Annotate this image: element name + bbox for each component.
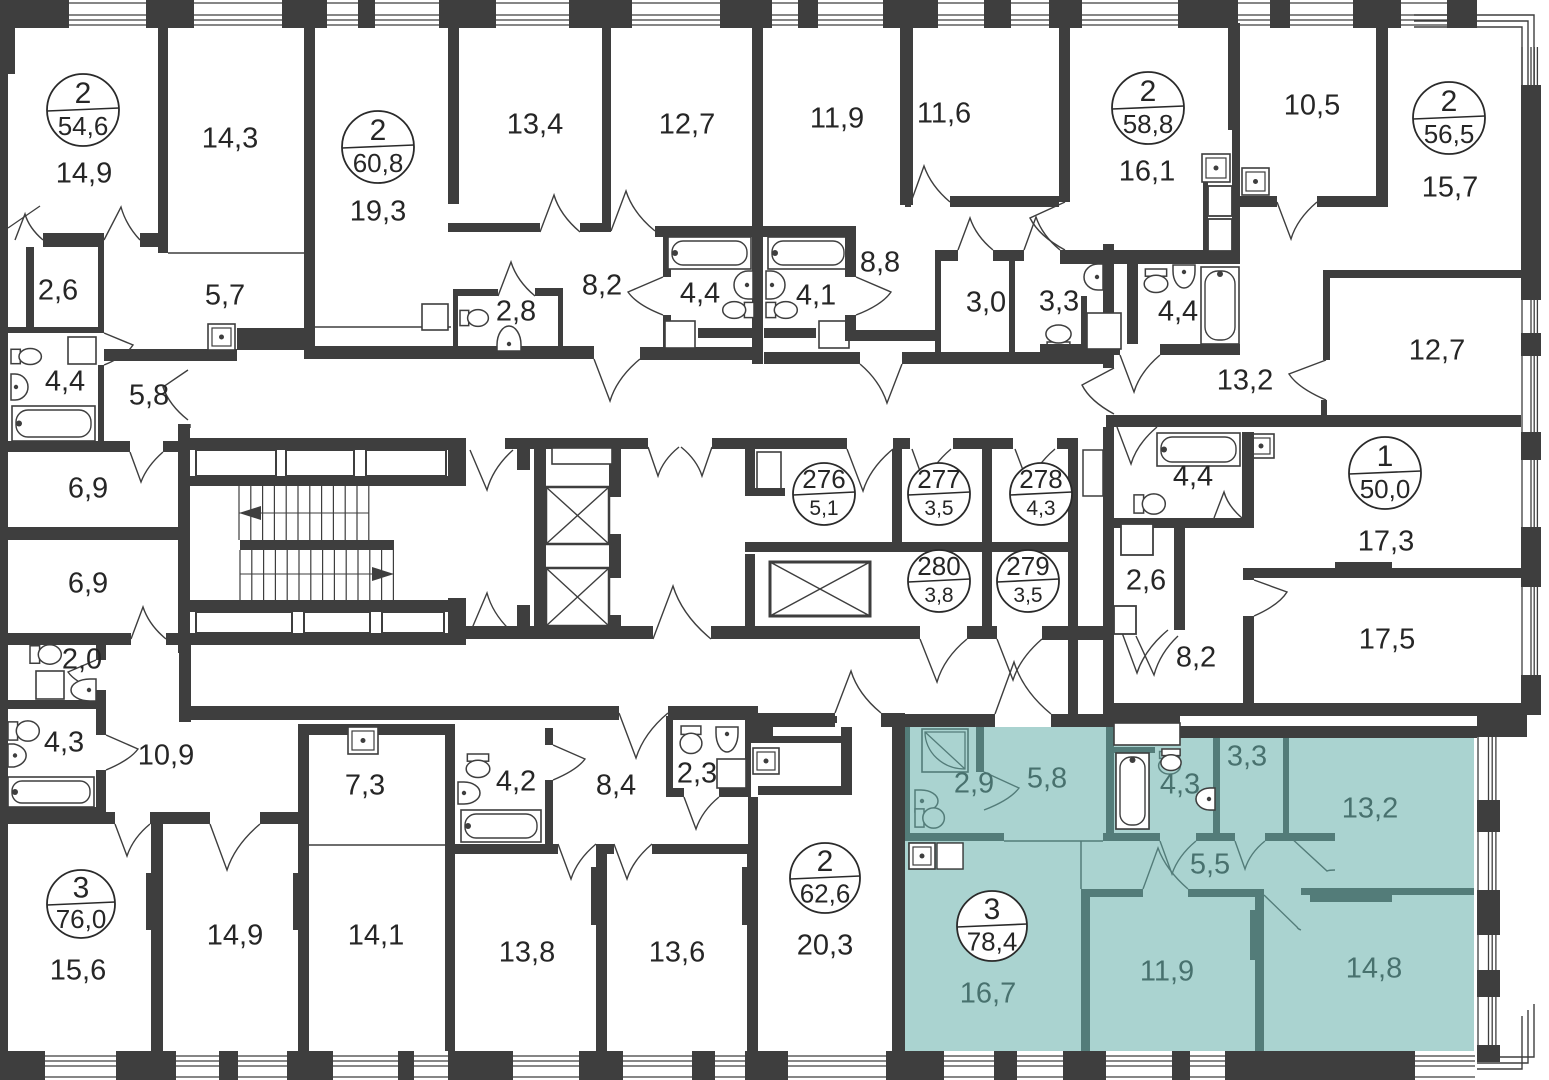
svg-text:2,0: 2,0 [62, 644, 102, 676]
svg-text:7,3: 7,3 [345, 770, 385, 802]
svg-text:1: 1 [1377, 440, 1394, 473]
svg-text:56,5: 56,5 [1424, 119, 1475, 149]
svg-text:4,4: 4,4 [680, 278, 720, 310]
svg-text:13,2: 13,2 [1217, 365, 1273, 397]
svg-text:4,4: 4,4 [1158, 296, 1198, 328]
svg-text:279: 279 [1006, 551, 1049, 581]
svg-text:62,6: 62,6 [800, 878, 851, 908]
svg-text:3,0: 3,0 [966, 287, 1006, 319]
svg-text:3: 3 [73, 872, 90, 905]
svg-text:2: 2 [75, 77, 92, 110]
svg-text:54,6: 54,6 [58, 111, 109, 141]
svg-text:5,8: 5,8 [129, 380, 169, 412]
svg-text:17,3: 17,3 [1358, 526, 1414, 558]
svg-text:15,6: 15,6 [50, 955, 106, 987]
svg-text:12,7: 12,7 [1409, 335, 1465, 367]
svg-text:3,5: 3,5 [924, 497, 953, 520]
svg-text:8,2: 8,2 [582, 270, 622, 302]
svg-text:2: 2 [817, 845, 834, 878]
svg-text:3: 3 [984, 893, 1001, 926]
svg-text:2,8: 2,8 [496, 296, 536, 328]
svg-text:6,9: 6,9 [68, 473, 108, 505]
svg-text:10,9: 10,9 [138, 740, 194, 772]
svg-text:2: 2 [370, 114, 387, 147]
svg-text:2,3: 2,3 [677, 758, 717, 790]
svg-text:13,4: 13,4 [507, 109, 563, 141]
svg-text:14,3: 14,3 [202, 123, 258, 155]
svg-text:19,3: 19,3 [350, 196, 406, 228]
svg-text:2: 2 [1441, 85, 1458, 118]
svg-text:277: 277 [917, 464, 960, 494]
svg-text:60,8: 60,8 [353, 148, 404, 178]
svg-text:276: 276 [802, 464, 845, 494]
svg-text:16,1: 16,1 [1119, 156, 1175, 188]
svg-text:3,8: 3,8 [924, 584, 953, 607]
svg-text:5,1: 5,1 [809, 497, 838, 520]
svg-text:15,7: 15,7 [1422, 172, 1478, 204]
svg-text:78,4: 78,4 [967, 926, 1018, 956]
svg-text:20,3: 20,3 [797, 930, 853, 962]
svg-text:14,1: 14,1 [348, 920, 404, 952]
svg-text:3,5: 3,5 [1013, 584, 1042, 607]
svg-text:4,3: 4,3 [44, 727, 84, 759]
svg-text:2,6: 2,6 [1126, 565, 1166, 597]
svg-text:2,6: 2,6 [38, 275, 78, 307]
svg-text:3,3: 3,3 [1039, 286, 1079, 318]
svg-text:11,6: 11,6 [917, 98, 971, 130]
svg-text:50,0: 50,0 [1360, 474, 1411, 504]
svg-text:8,8: 8,8 [860, 247, 900, 279]
svg-text:14,9: 14,9 [207, 920, 263, 952]
svg-text:280: 280 [917, 551, 960, 581]
svg-text:11,9: 11,9 [810, 103, 864, 135]
svg-text:17,5: 17,5 [1359, 624, 1415, 656]
svg-text:8,2: 8,2 [1176, 642, 1216, 674]
svg-text:4,4: 4,4 [45, 366, 85, 398]
svg-text:10,5: 10,5 [1284, 90, 1340, 122]
svg-text:5,7: 5,7 [205, 280, 245, 312]
svg-text:13,6: 13,6 [649, 937, 705, 969]
svg-text:4,3: 4,3 [1026, 497, 1055, 520]
svg-text:58,8: 58,8 [1123, 109, 1174, 139]
svg-text:278: 278 [1019, 464, 1062, 494]
svg-text:4,4: 4,4 [1173, 461, 1213, 493]
svg-text:76,0: 76,0 [56, 904, 107, 934]
svg-text:4,2: 4,2 [496, 766, 536, 798]
svg-text:13,8: 13,8 [499, 937, 555, 969]
svg-text:4,1: 4,1 [796, 280, 836, 312]
svg-text:8,4: 8,4 [596, 770, 636, 802]
svg-text:14,9: 14,9 [56, 158, 112, 190]
svg-text:2: 2 [1140, 75, 1157, 108]
svg-text:6,9: 6,9 [68, 568, 108, 600]
svg-text:12,7: 12,7 [659, 109, 715, 141]
